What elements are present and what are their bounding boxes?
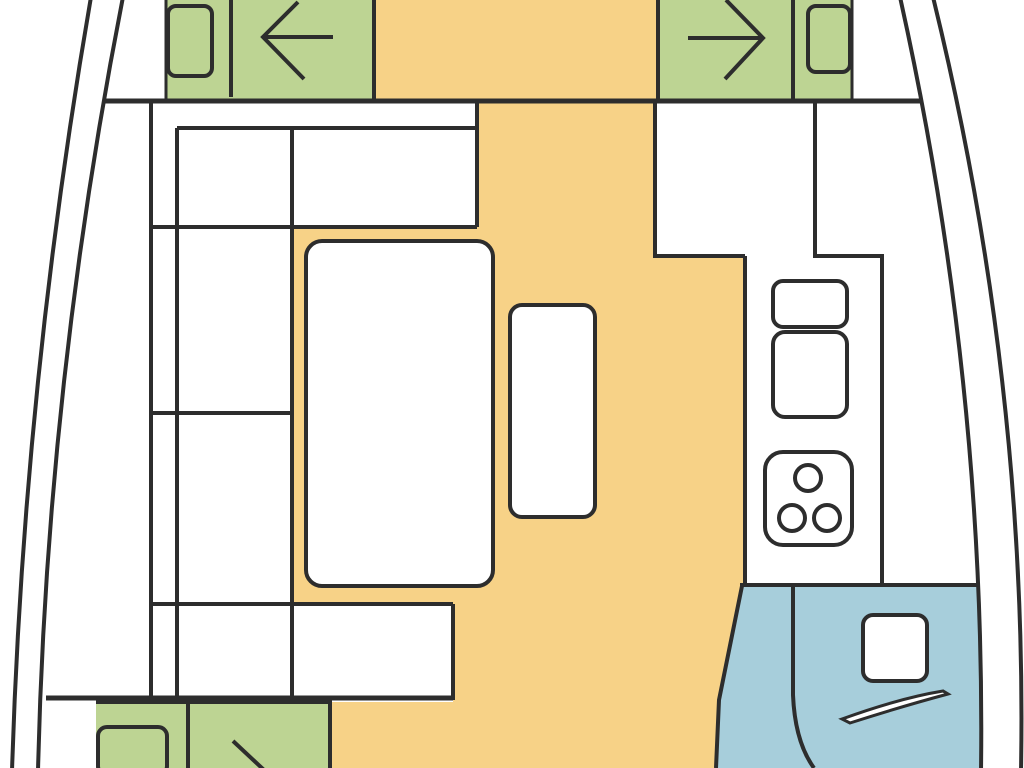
hull-outer-left-line: [12, 0, 91, 768]
galley-sink-large: [773, 332, 847, 417]
galley-sink-small: [773, 281, 847, 327]
center-bench: [510, 305, 595, 517]
stove-burner-left: [779, 505, 805, 531]
head-compartment-area: [716, 585, 982, 768]
pillow-forward-right: [808, 6, 850, 72]
stove-burner-right: [814, 505, 840, 531]
salon-table: [306, 241, 493, 586]
floor-plan-canvas: [0, 0, 1024, 768]
head-washbasin: [863, 615, 927, 681]
stove: [765, 452, 852, 545]
stove-burner-top: [795, 465, 821, 491]
corridor-floor: [374, 0, 658, 102]
pillow-forward-left: [168, 6, 212, 76]
pillow-aft-left: [98, 727, 167, 768]
boat-floor-plan: [0, 0, 1024, 768]
hull-inner-left-line: [38, 0, 123, 768]
